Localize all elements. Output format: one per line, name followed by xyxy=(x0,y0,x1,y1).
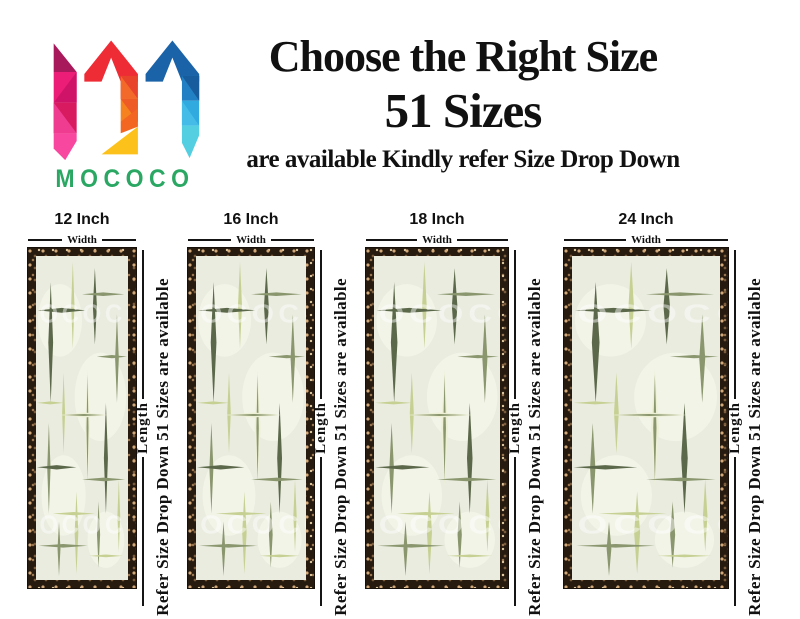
headline-title: Choose the Right Size xyxy=(222,34,704,80)
length-dim-line-top xyxy=(734,250,736,399)
side-note-rail: Refer Size Drop Down 51 Sizes are availa… xyxy=(742,250,767,616)
glass-pattern-svg: MOCOCOMOCOCO xyxy=(374,256,500,580)
panel-block: 18 Inch Width MOCOCOMOCOCO xyxy=(366,210,508,588)
speckled-frame: MOCOCOMOCOCO xyxy=(564,248,728,588)
side-note-text: Refer Size Drop Down 51 Sizes are availa… xyxy=(745,278,765,616)
speckled-frame: MOCOCOMOCOCO xyxy=(188,248,314,588)
length-dim-line-top xyxy=(142,250,144,399)
glass-pattern-svg: MOCOCOMOCOCO xyxy=(572,256,720,580)
side-note-rail: Refer Size Drop Down 51 Sizes are availa… xyxy=(150,250,175,616)
width-dim-label: Width xyxy=(231,234,271,246)
glass-panel-image: MOCOCOMOCOCO xyxy=(374,256,500,580)
svg-text:MOCOCO: MOCOCO xyxy=(196,510,306,540)
length-dim-line-top xyxy=(514,250,516,399)
size-column-12-inch: 12 Inch Width MOCOCOMOCOCO Length Refer … xyxy=(28,210,175,616)
width-dim-line-right xyxy=(457,239,508,241)
width-dim-line-left xyxy=(366,239,417,241)
length-dim-line-bottom xyxy=(142,457,144,606)
length-dim-line-top xyxy=(320,250,322,399)
width-dim-line-left xyxy=(188,239,231,241)
panel-block: 16 Inch Width MOCOCOMOCOCO xyxy=(188,210,314,588)
size-column-24-inch: 24 Inch Width MOCOCOMOCOCO Length Refer … xyxy=(564,210,767,616)
glass-pattern-svg: MOCOCOMOCOCO xyxy=(196,256,306,580)
width-dim-label: Width xyxy=(417,234,457,246)
width-dimension: Width xyxy=(188,232,314,248)
size-label: 12 Inch xyxy=(28,210,136,232)
size-guide-banner: MOCOCO Choose the Right Size 51 Sizes ar… xyxy=(0,0,800,619)
side-note-rail: Refer Size Drop Down 51 Sizes are availa… xyxy=(522,250,547,616)
length-dimension: Length xyxy=(136,250,150,606)
width-dim-label: Width xyxy=(626,234,666,246)
length-dimension: Length xyxy=(508,250,522,606)
width-dim-line-right xyxy=(666,239,728,241)
size-label: 18 Inch xyxy=(366,210,508,232)
headline-subtitle: are available Kindly refer Size Drop Dow… xyxy=(222,146,704,174)
side-note-text: Refer Size Drop Down 51 Sizes are availa… xyxy=(331,278,351,616)
svg-text:MOCOCO: MOCOCO xyxy=(572,299,720,328)
size-column-18-inch: 18 Inch Width MOCOCOMOCOCO Length Refer … xyxy=(366,210,547,616)
length-dimension: Length xyxy=(314,250,328,606)
width-dim-label: Width xyxy=(62,234,102,246)
glass-panel-image: MOCOCOMOCOCO xyxy=(196,256,306,580)
length-dim-label: Length xyxy=(507,399,524,457)
svg-text:MOCOCO: MOCOCO xyxy=(196,299,306,329)
panel-block: 24 Inch Width MOCOCOMOCOCO xyxy=(564,210,728,588)
speckled-frame: MOCOCOMOCOCO xyxy=(28,248,136,588)
svg-text:MOCOCO: MOCOCO xyxy=(572,510,720,539)
width-dimension: Width xyxy=(28,232,136,248)
size-column-16-inch: 16 Inch Width MOCOCOMOCOCO Length Refer … xyxy=(188,210,353,616)
brand-logo: MOCOCO xyxy=(45,28,205,194)
length-dim-label: Length xyxy=(313,399,330,457)
width-dim-line-right xyxy=(102,239,136,241)
length-dim-label: Length xyxy=(135,399,152,457)
width-dim-line-right xyxy=(271,239,314,241)
glass-panel-image: MOCOCOMOCOCO xyxy=(572,256,720,580)
mococo-m-icon xyxy=(45,28,205,162)
headline-sizes-count: 51 Sizes xyxy=(222,86,704,135)
svg-text:MOCOCO: MOCOCO xyxy=(374,299,500,328)
headline-block: Choose the Right Size 51 Sizes are avail… xyxy=(222,34,704,174)
length-dim-label: Length xyxy=(727,399,744,457)
width-dimension: Width xyxy=(564,232,728,248)
size-label: 16 Inch xyxy=(188,210,314,232)
speckled-frame: MOCOCOMOCOCO xyxy=(366,248,508,588)
width-dim-line-left xyxy=(564,239,626,241)
panel-block: 12 Inch Width MOCOCOMOCOCO xyxy=(28,210,136,588)
glass-pattern-svg: MOCOCOMOCOCO xyxy=(36,256,128,580)
width-dimension: Width xyxy=(366,232,508,248)
width-dim-line-left xyxy=(28,239,62,241)
length-dim-line-bottom xyxy=(514,457,516,606)
svg-text:MOCOCO: MOCOCO xyxy=(36,511,128,540)
length-dim-line-bottom xyxy=(320,457,322,606)
side-note-text: Refer Size Drop Down 51 Sizes are availa… xyxy=(525,278,545,616)
svg-text:MOCOCO: MOCOCO xyxy=(36,299,128,328)
side-note-text: Refer Size Drop Down 51 Sizes are availa… xyxy=(153,278,173,616)
length-dimension: Length xyxy=(728,250,742,606)
length-dim-line-bottom xyxy=(734,457,736,606)
glass-panel-image: MOCOCOMOCOCO xyxy=(36,256,128,580)
brand-name: MOCOCO xyxy=(51,165,198,194)
svg-text:MOCOCO: MOCOCO xyxy=(374,511,500,540)
size-label: 24 Inch xyxy=(564,210,728,232)
side-note-rail: Refer Size Drop Down 51 Sizes are availa… xyxy=(328,250,353,616)
